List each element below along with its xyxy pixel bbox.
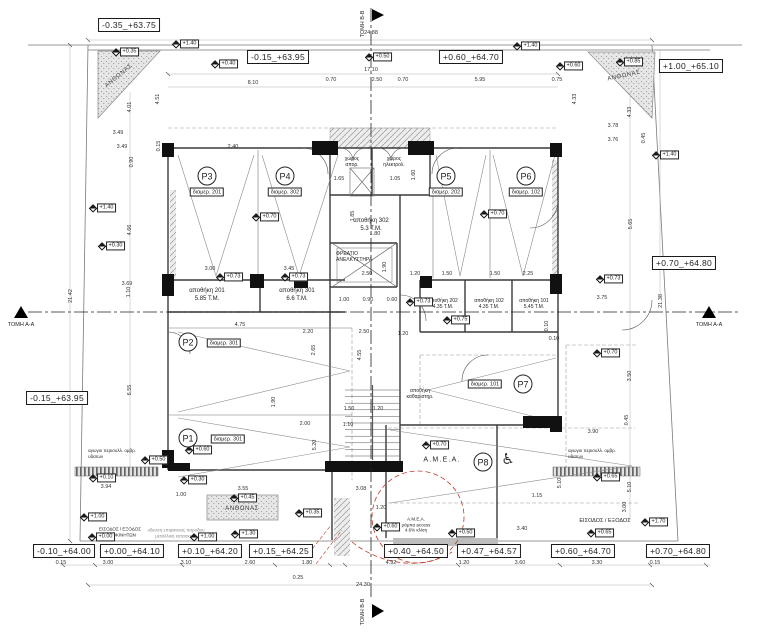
spot-level-marker: +1.00 [191,532,217,541]
dim-label: 0.25 [293,575,304,581]
spot-level-marker: +0.75 [444,315,470,324]
spot-level-marker: +0.70 [481,209,507,218]
dim-label: 24.88 [364,30,378,36]
spot-level-marker: +0.65 [588,528,614,537]
spot-level-marker: +0.60 [557,61,583,70]
level-flag-icon [231,530,239,538]
parking-id-badge: P5 [437,167,456,186]
spot-level-marker: +0.73 [407,297,433,306]
level-flag-icon [180,476,188,484]
elevator-shaft-label: ΦΡΕΑΤΙΟΑΝΕΛΚΥΣΤΗΡΑ [336,251,372,264]
elevation-label: +0.70_+64.80 [646,544,710,558]
spot-level-value: +1.40 [521,41,540,50]
level-flag-icon [641,518,649,526]
spot-level-marker: +1.30 [232,529,258,538]
spot-level-value: +0.50 [456,528,475,537]
dim-label: 0.45 [641,133,647,144]
dim-label: 3.49 [117,144,128,150]
dim-label: 0.90 [363,297,374,303]
storage-room-label: αποθήκη 3025.3 Τ.Μ. [353,218,389,234]
spot-level-value: +1.00 [198,532,217,541]
storage-room-label: αποθήκη 1015.45 Τ.Μ. [519,298,549,311]
spot-level-value: +0.70 [488,209,507,218]
level-flag-icon [365,53,373,61]
dim-label: 5.20 [312,440,318,451]
dim-label: 3.75 [597,295,608,301]
dim-label: 0.60 [387,297,398,303]
spot-level-value: +0.75 [451,315,470,324]
dim-label: 5.10 [557,478,563,489]
parking-apartment-label: διαμερ. 101 [468,380,502,389]
dim-label: 0.15 [156,141,162,152]
dim-label: 2.25 [523,271,534,277]
elevation-label: +0.70_+64.80 [652,256,716,270]
level-flag-icon [593,473,601,481]
dim-label: 1.20 [398,331,409,337]
dim-label: 1.20 [410,271,421,277]
dim-label: 0.10 [549,336,560,342]
spot-level-marker: +1.40 [653,150,679,159]
level-flag-icon [448,529,456,537]
level-flag-icon [587,529,595,537]
dim-label: 21.38 [658,294,664,308]
dim-label: 2.50 [362,271,373,277]
spot-level-value: +0.70 [601,348,620,357]
dim-label: 4.55 [357,350,363,361]
parking-apartment-label: διαμερ. 102 [509,188,543,197]
dim-label: 3.78 [608,123,619,129]
section-label-aa: ΤΟΜΗ Α-Α [696,322,723,328]
dim-label: 3.08 [356,486,367,492]
level-flag-icon [616,58,624,66]
ramp-annotation: Α.Μ.Ε.Α.ράμπα access4.6% κλίση [402,517,431,534]
projection-dashed-lines [168,128,640,503]
level-flag-icon [172,40,180,48]
dim-label: 4.92 [386,560,397,566]
level-flag-icon [211,60,219,68]
dim-label: 2.65 [311,345,317,356]
parking-apartment-label: διαμερ. 202 [429,188,463,197]
spot-level-value: +0.60 [193,445,212,454]
dim-label: 4.01 [127,102,133,113]
elevation-label: -0.15_+63.95 [247,50,309,64]
parking-id-badge: P8 [474,453,493,472]
spot-level-value: +0.30 [188,475,207,484]
spot-level-marker: +1.40 [90,203,116,212]
dim-label: 1.50 [344,406,355,412]
dim-label: 2.40 [228,144,239,150]
spot-level-value: +1.40 [97,203,116,212]
pedestrian-entrance-label: ΕΙΣΟΔΟΣ / ΕΞΟΔΟΣ [579,518,630,524]
elevation-label: -0.35_+63.75 [98,18,160,32]
dim-label: 1.65 [334,176,345,182]
dim-label: 2.50 [372,77,383,83]
spot-level-value: +0.85 [624,57,643,66]
dim-label: 1.20 [373,406,384,412]
spot-level-value: +0.35 [303,508,322,517]
level-flag-icon [80,513,88,521]
dim-label: 3.60 [515,560,526,566]
spot-level-marker: +0.45 [231,493,257,502]
storage-room-label: αποθήκη 3016.6 Τ.Μ. [279,288,315,304]
elevation-label: +0.10_+64.20 [178,544,242,558]
garbage-room-label: χώροςαπορ. [345,156,359,169]
drain-label: αγωγοι περισυλλ. ομβρ.υδατων [88,448,136,459]
dim-label: 2.50 [359,329,370,335]
storage-room-label: αποθήκηκαθαριστηρ. [406,388,433,401]
spot-level-marker: +0.30 [181,475,207,484]
spot-level-marker: +0.65 [594,472,620,481]
dim-label: 4.66 [127,225,133,236]
spot-level-value: +1.70 [649,517,668,526]
spot-level-value: +0.73 [414,297,433,306]
level-flag-icon [190,533,198,541]
dim-label: 0.45 [624,415,630,426]
dim-label: 3.00 [622,502,628,513]
level-flag-icon [596,275,604,283]
storage-room-label: αποθήκη 2015.85 Τ.Μ. [189,288,225,304]
spot-level-value: +0.65 [601,472,620,481]
spot-level-marker: +0.35 [296,508,322,517]
dim-label: 1.00 [339,297,350,303]
spot-level-value: +0.60 [564,61,583,70]
dim-label: 3.00 [205,266,216,272]
spot-level-value: +0.00 [96,532,115,541]
floor-plan-sheet: -0.35_+63.75 -0.15_+63.95 +0.60_+64.70 +… [0,0,768,643]
dim-label: 21.42 [68,289,74,303]
drain-label: αγωγοι περισυλλ. ομβρ.υδατων [568,448,616,459]
dim-label: 0.90 [129,157,135,168]
dim-label: 1.10 [126,287,132,298]
level-flag-icon [141,456,149,464]
spot-level-marker: +0.50 [142,455,168,464]
parking-id-badge: P2 [179,333,198,352]
storage-room-label: αποθήκη 1024.35 Τ.Μ. [474,298,504,311]
dim-label: 2.00 [300,421,311,427]
dim-label: 3.49 [113,130,124,136]
dim-label: 17.10 [364,67,378,73]
planter-label: ΑΝΘΩΝΑΣ [225,506,259,512]
level-flag-icon [593,349,601,357]
level-flag-icon [556,62,564,70]
parking-id-badge: P1 [179,429,198,448]
spot-level-value: +1.30 [239,529,258,538]
parking-apartment-label: διαμερ. 301 [207,339,241,348]
dim-label: 3.76 [608,137,619,143]
spot-level-value: +1.40 [660,150,679,159]
spot-level-marker: +0.85 [617,57,643,66]
dim-label: 5.10 [627,482,633,493]
parking-id-badge: P7 [514,375,533,394]
spot-level-marker: +0.60 [374,522,400,531]
spot-level-marker: +0.70 [423,440,449,449]
amea-label: Α.Μ.Ε.Α. [423,457,460,464]
spot-level-value: +0.73 [224,272,243,281]
dim-label: 1.90 [382,262,388,273]
spot-level-marker: +0.73 [597,274,623,283]
level-flag-icon [443,316,451,324]
dim-label: 1.90 [271,397,277,408]
level-flag-icon [112,48,120,56]
spot-level-marker: +1.00 [81,512,107,521]
dim-label: 0.70 [326,77,337,83]
level-flag-icon [513,42,521,50]
dim-label: 24.30 [356,582,370,588]
spot-level-marker: +0.50 [449,528,475,537]
dim-label: 0.15 [650,560,661,566]
dim-label: 4.33 [627,107,633,118]
spot-level-value: +0.50 [149,455,168,464]
spot-level-marker: +0.10 [90,473,116,482]
elevation-label: +0.60_+64.70 [439,50,503,64]
dim-label: 2.60 [245,560,256,566]
spot-level-value: +1.00 [88,512,107,521]
dim-label: 1.15 [532,493,543,499]
dim-label: 3.90 [588,429,599,435]
level-flag-icon [281,273,289,281]
level-flag-icon [216,273,224,281]
dim-label: 1.00 [176,492,187,498]
spot-level-marker: +0.40 [212,59,238,68]
level-flag-icon [98,242,106,250]
dim-label: 3.55 [238,486,249,492]
spot-level-value: +0.65 [595,528,614,537]
dim-label: 2.20 [303,329,314,335]
dim-label: 1.80 [302,560,313,566]
elevation-label: -0.15_+63.95 [26,391,88,405]
dim-label: 0.10 [544,321,550,332]
spot-level-value: +0.50 [373,52,392,61]
elevation-label: +1.00_+65.10 [659,59,723,73]
level-flag-icon [252,213,260,221]
parking-id-badge: P6 [517,167,536,186]
spot-level-value: +0.73 [604,274,623,283]
dim-label: 3.50 [627,371,633,382]
dim-label: 4.75 [235,322,246,328]
dim-label: 0.70 [398,77,409,83]
elevation-label: +0.00_+64.10 [100,544,164,558]
spot-level-value: +1.40 [180,39,199,48]
spot-level-value: +0.40 [219,59,238,68]
dim-label: 3.00 [103,560,114,566]
spot-level-marker: +1.40 [514,41,540,50]
dim-label: 1.05 [390,176,401,182]
spot-level-marker: +0.30 [99,241,125,250]
dim-label: 1.50 [490,271,501,277]
level-flag-icon [89,204,97,212]
spot-level-value: +0.70 [260,212,279,221]
vent-shaft [350,168,374,196]
parking-stall-markings [178,155,632,503]
spot-level-marker: +0.35 [113,47,139,56]
level-flag-icon [406,298,414,306]
spot-level-marker: +0.73 [217,272,243,281]
spot-level-marker: +0.50 [366,52,392,61]
dim-label: 1.50 [442,271,453,277]
spot-level-value: +0.73 [289,272,308,281]
spot-level-value: +0.35 [120,47,139,56]
elevation-label: -0.10_+64.00 [33,544,95,558]
parking-id-badge: P4 [276,167,295,186]
spot-level-marker: +1.40 [173,39,199,48]
elevation-label: +0.40_+64.50 [384,544,448,558]
level-flag-icon [88,533,96,541]
dim-label: 0.75 [552,77,563,83]
dim-label: 1.20 [459,560,470,566]
dim-label: 3.30 [592,560,603,566]
spot-level-value: +0.70 [430,440,449,449]
dim-label: 1.10 [343,422,354,428]
level-flag-icon [295,509,303,517]
dim-label: 6.55 [127,385,133,396]
elevation-label: +0.15_+64.25 [249,544,313,558]
dim-label: 1.20 [376,505,387,511]
dim-label: 5.65 [628,219,634,230]
parking-apartment-label: διαμερ. 301 [211,435,245,444]
dim-label: 3.40 [517,526,528,532]
spot-level-marker: +0.70 [594,348,620,357]
spot-level-value: +0.60 [381,522,400,531]
level-flag-icon [480,210,488,218]
parking-id-badge: P3 [198,167,217,186]
section-label-bb: ΤΟΜΗ Β-Β [360,599,366,626]
spot-level-marker: +1.70 [642,517,668,526]
elevation-label: +0.47_+64.57 [457,544,521,558]
dim-label: 4.33 [572,94,578,105]
level-flag-icon [89,474,97,482]
section-label-bb: ΤΟΜΗ Β-Β [360,11,366,38]
parking-apartment-label: διαμερ. 302 [268,188,302,197]
dim-label: 0.15 [56,560,67,566]
spot-level-marker: +0.70 [253,212,279,221]
level-flag-icon [422,441,430,449]
parking-apartment-label: διαμερ. 201 [190,188,224,197]
dim-label: 3.45 [284,266,295,272]
spot-level-value: +0.45 [238,493,257,502]
level-flag-icon [652,151,660,159]
dim-label: 1.60 [411,170,417,181]
spot-level-marker: +0.00 [89,532,115,541]
spot-level-value: +0.30 [106,241,125,250]
section-label-aa: ΤΟΜΗ Α-Α [8,322,35,328]
dim-label: 3.10 [181,560,192,566]
dim-label: 5.95 [475,77,486,83]
electrical-room-label: χώροςηλεκτρολ. [383,156,404,169]
wheelchair-icon: ♿ [501,450,514,468]
spot-level-marker: +0.73 [282,272,308,281]
dim-label: 3.94 [101,484,112,490]
dim-label: 8.10 [248,80,259,86]
spot-level-value: +0.10 [97,473,116,482]
level-flag-icon [373,523,381,531]
level-flag-icon [230,494,238,502]
dim-label: 4.51 [155,94,161,105]
